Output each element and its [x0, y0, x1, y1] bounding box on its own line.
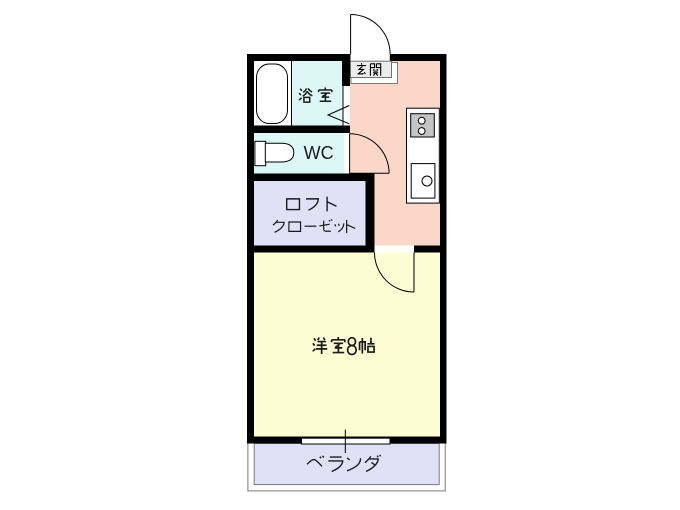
- svg-text:WC: WC: [304, 143, 334, 163]
